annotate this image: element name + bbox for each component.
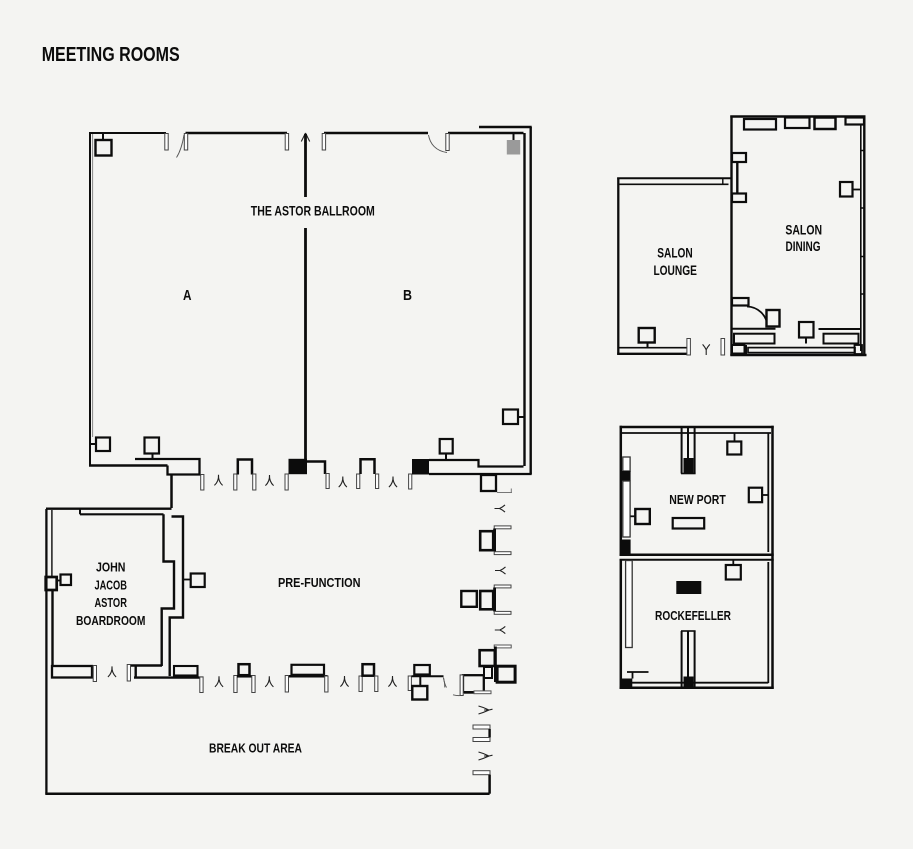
svg-text:MEETING ROOMS: MEETING ROOMS [42, 43, 180, 66]
svg-text:LOUNGE: LOUNGE [653, 263, 697, 278]
svg-text:THE ASTOR BALLROOM: THE ASTOR BALLROOM [251, 204, 375, 219]
svg-text:NEW PORT: NEW PORT [669, 492, 726, 507]
svg-text:SALON: SALON [785, 223, 822, 238]
svg-text:DINING: DINING [786, 239, 821, 254]
svg-text:BREAK OUT AREA: BREAK OUT AREA [209, 741, 302, 756]
svg-text:B: B [403, 288, 412, 304]
svg-text:JACOB: JACOB [94, 578, 127, 592]
svg-text:ASTOR: ASTOR [94, 596, 127, 610]
svg-text:JOHN: JOHN [96, 561, 126, 575]
svg-text:A: A [183, 288, 192, 304]
svg-text:SALON: SALON [657, 246, 693, 261]
svg-text:BOARDROOM: BOARDROOM [76, 614, 146, 628]
svg-text:PRE-FUNCTION: PRE-FUNCTION [278, 576, 361, 590]
svg-text:ROCKEFELLER: ROCKEFELLER [655, 608, 731, 623]
